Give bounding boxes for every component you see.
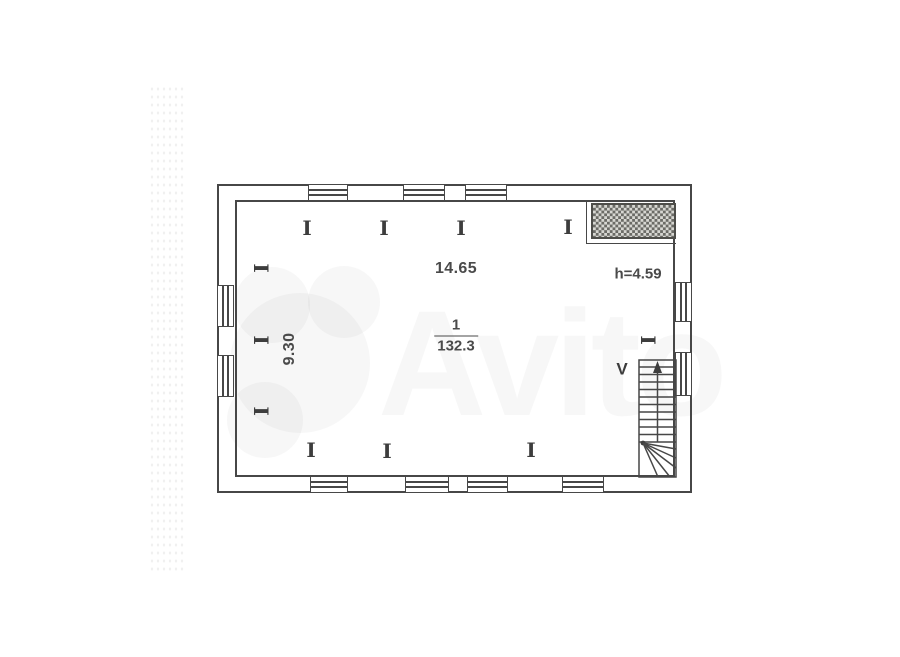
column-symbol: I bbox=[456, 218, 465, 238]
window-bottom bbox=[562, 476, 604, 493]
shaft-partition-vertical bbox=[586, 200, 587, 244]
dimension-depth-label: 9.30 bbox=[282, 333, 298, 366]
shaft-partition-horizontal bbox=[586, 243, 676, 244]
window-top bbox=[308, 184, 348, 201]
hatched-shaft bbox=[591, 203, 676, 239]
column-symbol-rotated: I bbox=[251, 406, 271, 415]
stair-direction-label: V bbox=[616, 361, 627, 378]
ceiling-height-label: h=4.59 bbox=[614, 267, 661, 282]
window-left bbox=[217, 355, 234, 397]
window-bottom bbox=[467, 476, 508, 493]
column-symbol: I bbox=[382, 441, 391, 461]
room-number: 1 bbox=[434, 318, 478, 336]
staircase bbox=[638, 359, 677, 478]
room-area: 132.3 bbox=[434, 335, 478, 355]
window-top bbox=[403, 184, 445, 201]
column-symbol-rotated: I bbox=[251, 263, 271, 272]
window-right bbox=[675, 282, 692, 322]
window-right bbox=[675, 352, 692, 396]
column-symbol: I bbox=[306, 440, 315, 460]
room-area-label: 1 132.3 bbox=[434, 318, 478, 355]
column-symbol: I bbox=[379, 218, 388, 238]
column-symbol: I bbox=[563, 217, 572, 237]
window-bottom bbox=[405, 476, 449, 493]
window-top bbox=[465, 184, 507, 201]
window-left bbox=[217, 285, 234, 327]
column-symbol-rotated: I bbox=[251, 335, 271, 344]
dimension-width-label: 14.65 bbox=[435, 261, 477, 277]
column-symbol-rotated: I bbox=[638, 335, 658, 344]
scan-artifact-strip bbox=[149, 85, 186, 573]
column-symbol: I bbox=[302, 218, 311, 238]
floor-plan-scan: Avito IIIIIIIIIII 14.65 9.30 h=4.59 V 1 … bbox=[0, 0, 900, 657]
column-symbol: I bbox=[526, 440, 535, 460]
window-bottom bbox=[310, 476, 348, 493]
